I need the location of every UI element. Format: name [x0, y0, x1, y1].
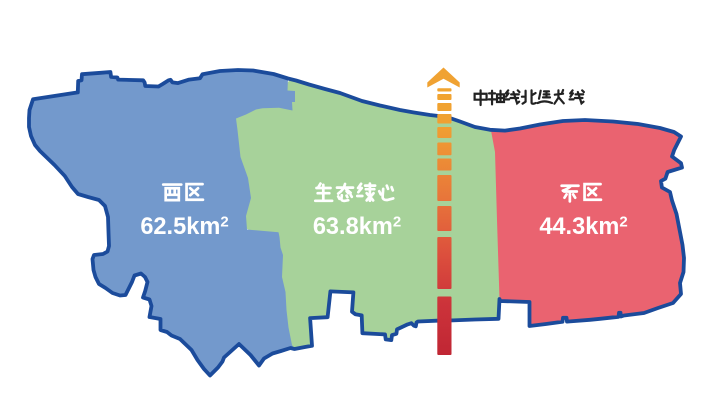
- svg-text:62.5km2: 62.5km2: [140, 214, 228, 241]
- svg-text:63.8km2: 63.8km2: [313, 214, 401, 241]
- svg-text:44.3km2: 44.3km2: [539, 214, 627, 241]
